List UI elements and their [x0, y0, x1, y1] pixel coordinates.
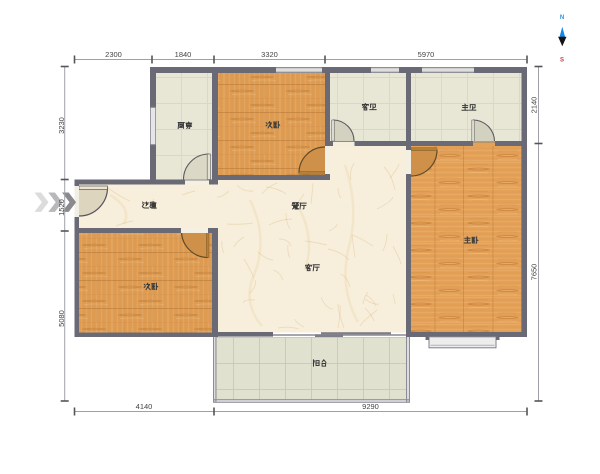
svg-text:3230: 3230	[57, 117, 66, 134]
svg-text:4140: 4140	[136, 402, 153, 411]
svg-text:5080: 5080	[57, 310, 66, 327]
svg-text:2300: 2300	[105, 50, 122, 59]
svg-text:2140: 2140	[530, 97, 539, 114]
svg-text:1840: 1840	[175, 50, 192, 59]
svg-text:1520: 1520	[57, 199, 66, 216]
svg-text:7650: 7650	[530, 264, 539, 281]
svg-text:5970: 5970	[418, 50, 435, 59]
svg-text:N: N	[560, 15, 564, 21]
svg-text:3320: 3320	[261, 50, 278, 59]
svg-text:9290: 9290	[362, 402, 379, 411]
svg-text:S: S	[560, 58, 564, 64]
